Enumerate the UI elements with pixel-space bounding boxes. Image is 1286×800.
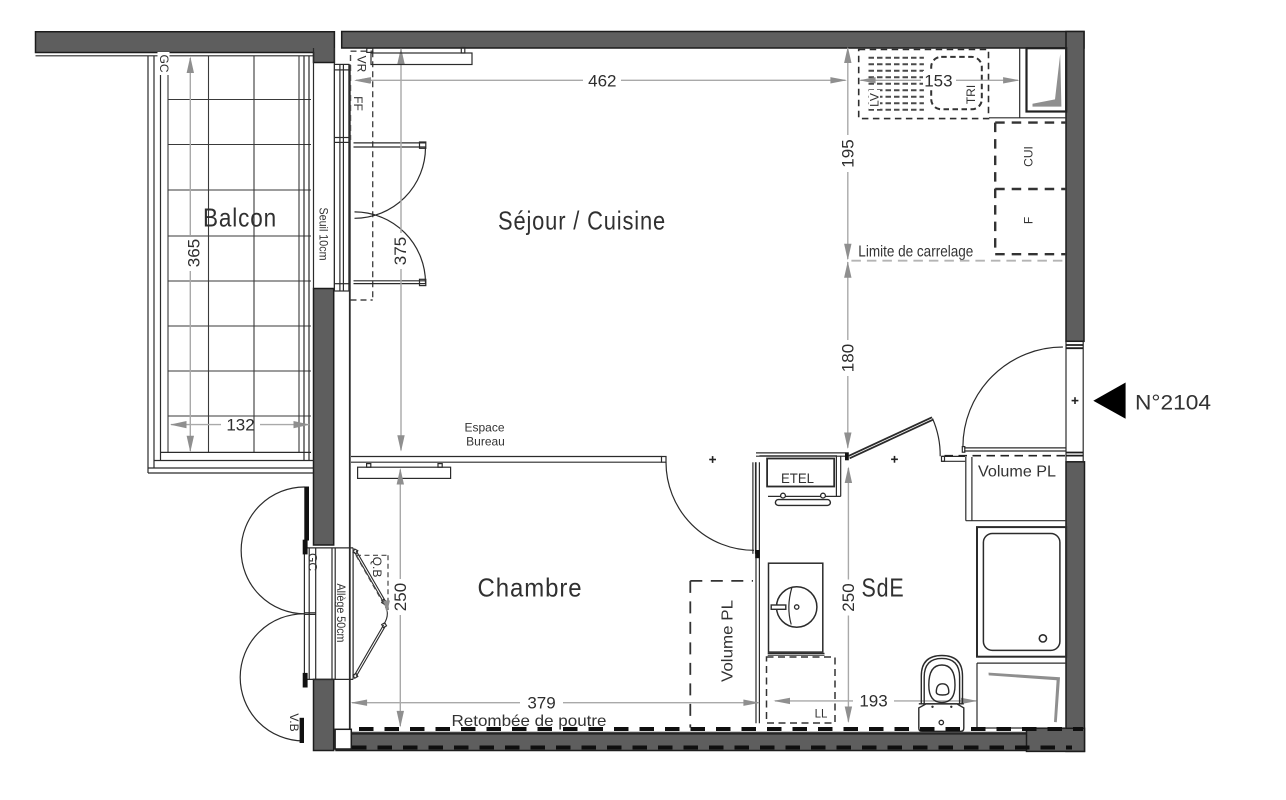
svg-text:Q.B: Q.B	[370, 557, 384, 578]
svg-text:Seuil 10cm: Seuil 10cm	[317, 208, 331, 261]
svg-text:GC: GC	[305, 553, 319, 571]
svg-text:CUI: CUI	[1022, 146, 1036, 167]
svg-text:V.B: V.B	[287, 713, 301, 731]
svg-text:LL: LL	[815, 709, 828, 721]
svg-text:SdE: SdE	[862, 573, 905, 603]
svg-text:Limite de carrelage: Limite de carrelage	[858, 244, 973, 261]
svg-text:153: 153	[924, 71, 952, 90]
svg-text:Chambre: Chambre	[478, 573, 583, 603]
svg-text:462: 462	[588, 71, 616, 90]
svg-text:375: 375	[391, 237, 410, 265]
svg-text:250: 250	[391, 583, 410, 611]
svg-text:N°2104: N°2104	[1135, 392, 1211, 415]
svg-text:379: 379	[527, 694, 555, 713]
svg-text:Volume PL: Volume PL	[978, 464, 1056, 481]
svg-text:Espace: Espace	[464, 421, 504, 435]
svg-text:195: 195	[838, 139, 857, 167]
svg-text:250: 250	[839, 583, 858, 611]
svg-text:FF: FF	[351, 96, 365, 111]
svg-text:VR: VR	[355, 56, 369, 73]
svg-text:132: 132	[226, 416, 254, 435]
svg-text:TRI: TRI	[964, 85, 978, 104]
svg-text:Balcon: Balcon	[203, 203, 277, 233]
svg-text:Volume PL: Volume PL	[720, 600, 737, 682]
svg-text:180: 180	[838, 344, 857, 372]
svg-text:193: 193	[859, 692, 887, 711]
svg-text:Séjour / Cuisine: Séjour / Cuisine	[498, 206, 666, 236]
svg-text:GC: GC	[157, 55, 171, 73]
svg-text:Bureau: Bureau	[466, 435, 505, 449]
svg-text:LV: LV	[868, 93, 882, 107]
svg-text:365: 365	[184, 239, 203, 267]
svg-text:Allège 50cm: Allège 50cm	[334, 584, 348, 643]
svg-text:F: F	[1022, 217, 1036, 224]
svg-text:ETEL: ETEL	[781, 470, 814, 486]
